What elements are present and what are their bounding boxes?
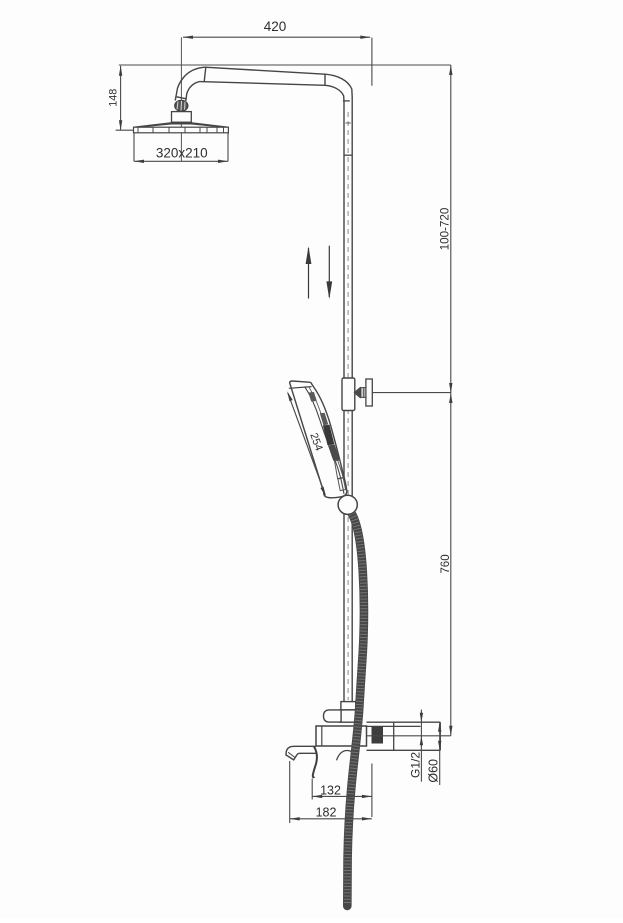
svg-text:760: 760: [440, 554, 452, 573]
svg-text:420: 420: [264, 19, 287, 34]
svg-text:132: 132: [320, 784, 341, 798]
svg-text:Ø60: Ø60: [427, 759, 441, 783]
svg-text:320x210: 320x210: [156, 146, 208, 161]
svg-text:148: 148: [108, 89, 120, 107]
svg-text:182: 182: [316, 806, 337, 820]
svg-text:100-720: 100-720: [438, 208, 451, 251]
svg-text:G1/2: G1/2: [408, 752, 422, 778]
